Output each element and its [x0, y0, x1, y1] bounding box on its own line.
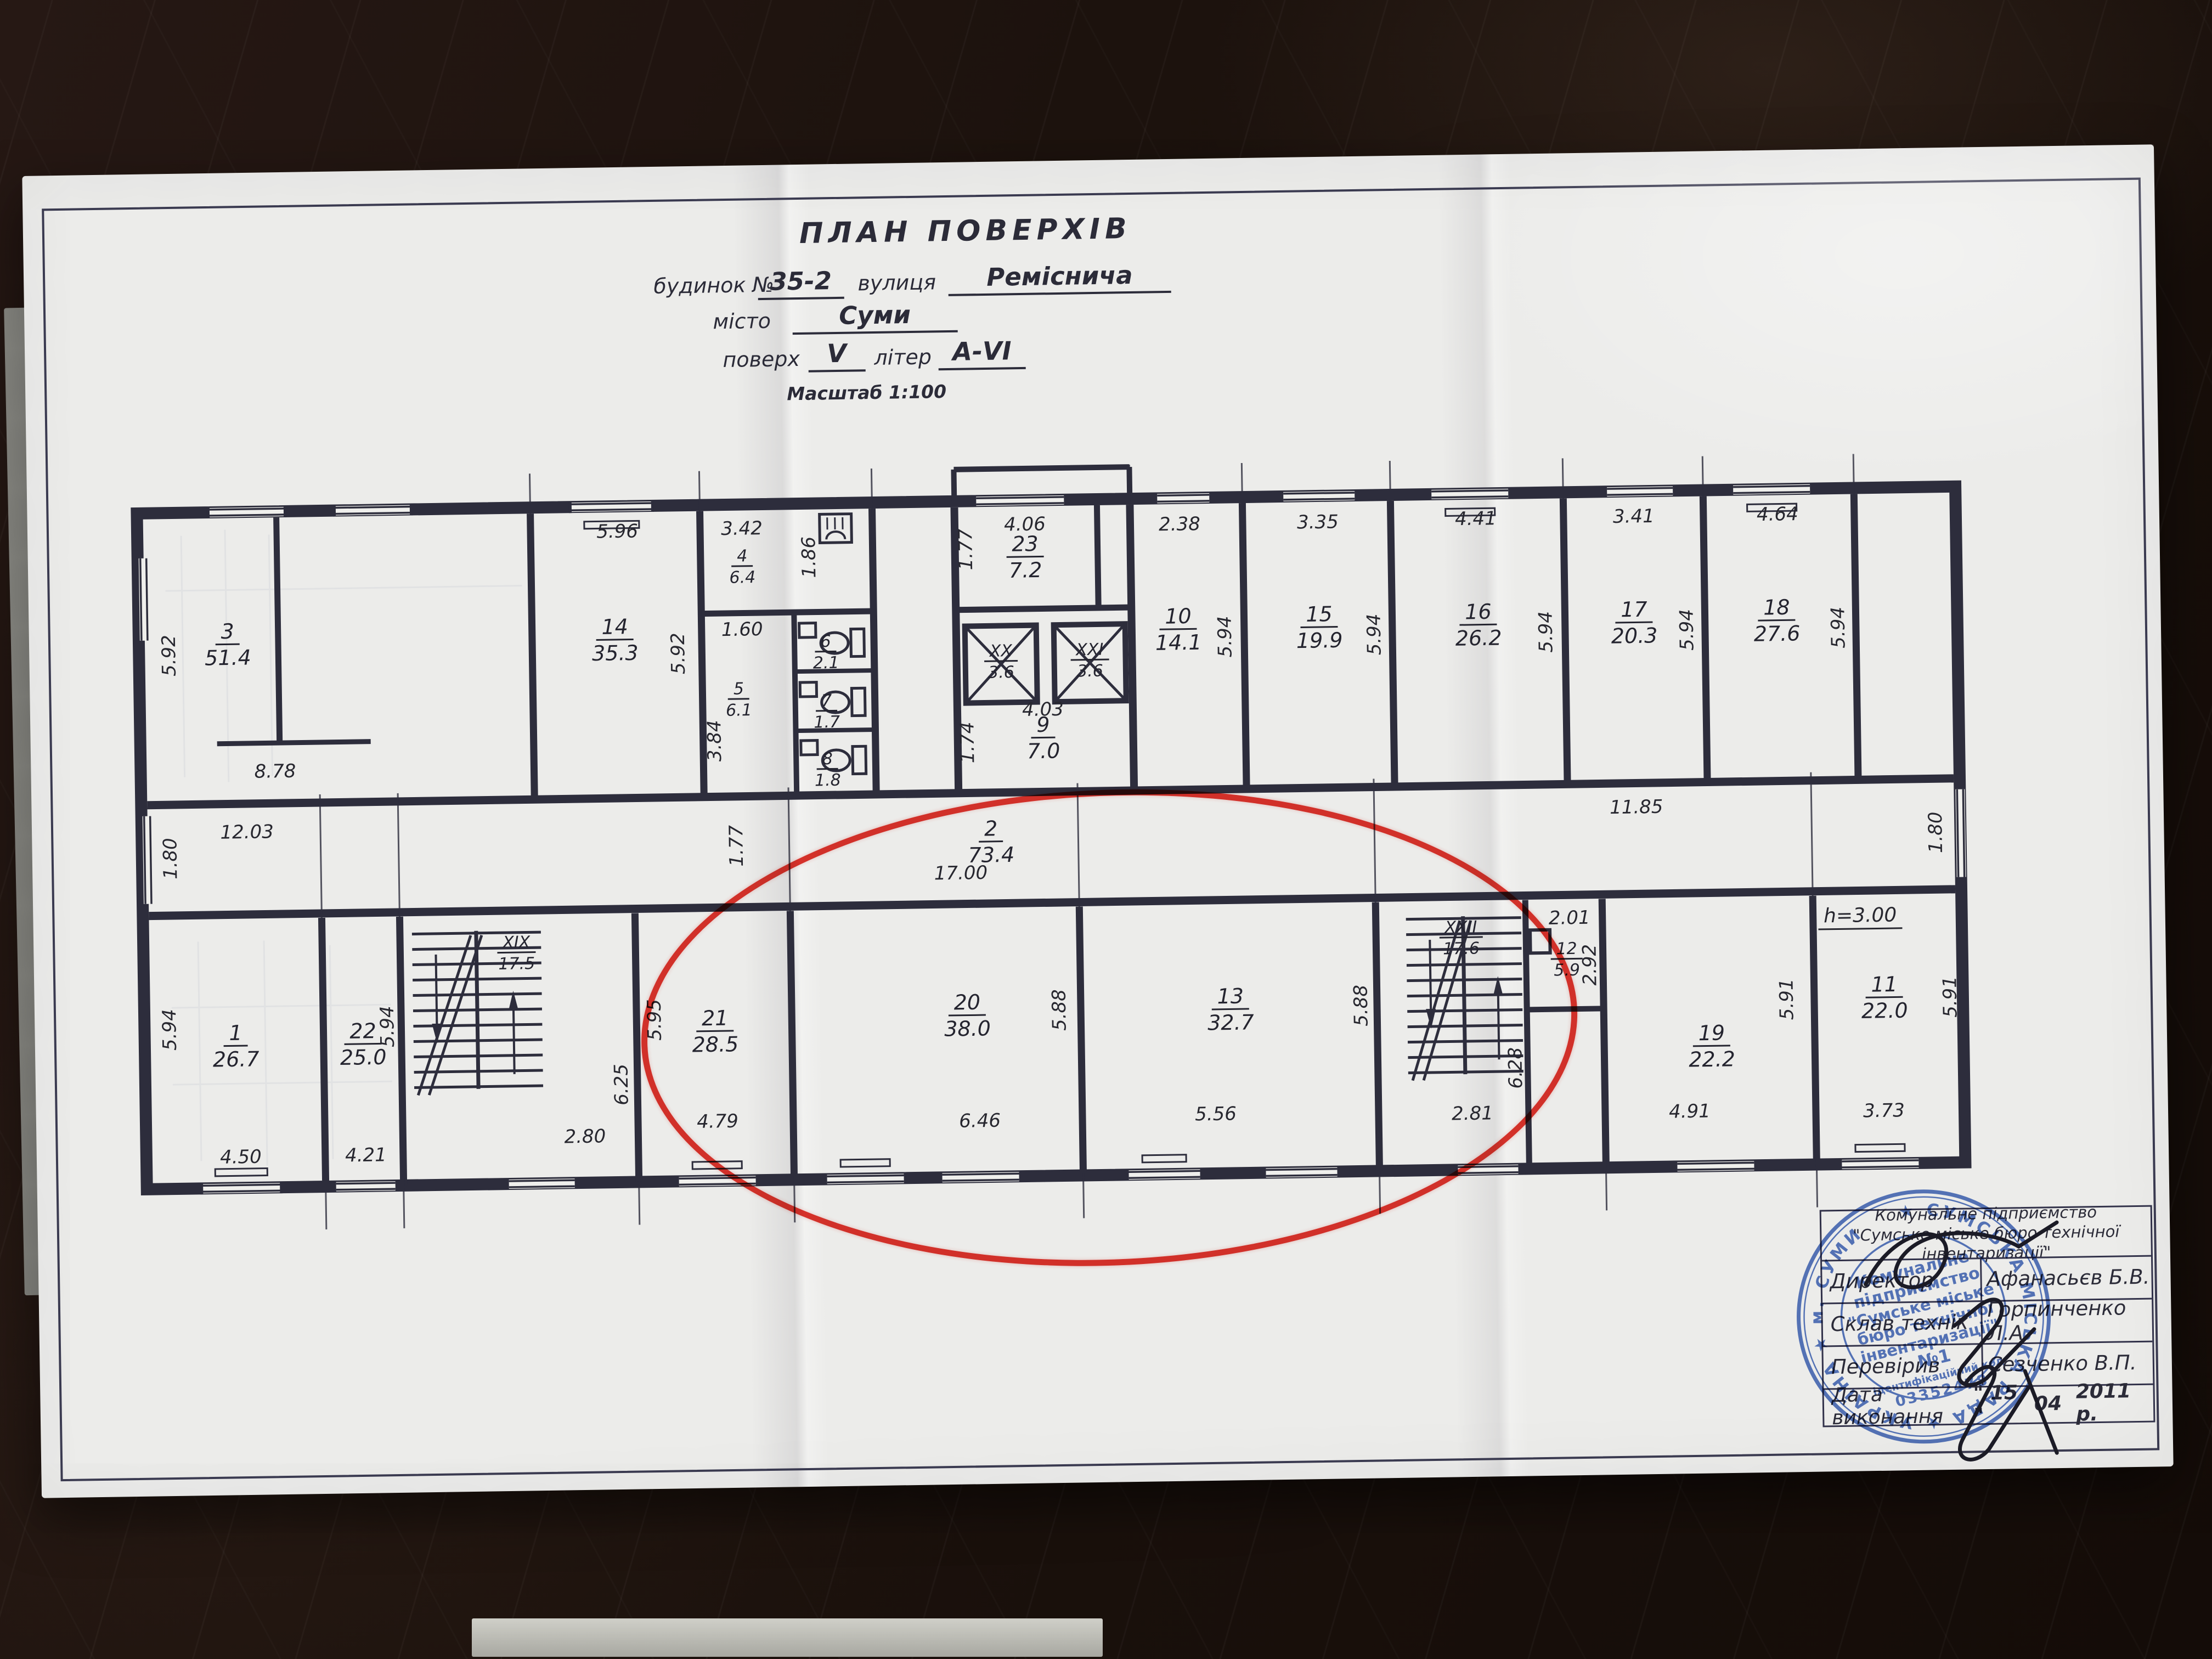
- dimension-label: 5.94: [1214, 616, 1236, 657]
- dimension-label: 1.60: [721, 618, 763, 641]
- room-label-18: 1827.6: [1753, 596, 1801, 645]
- dimension-label: 5.94: [1363, 613, 1385, 655]
- room-label-6: 62.1: [812, 633, 839, 672]
- room-label-10: 1014.1: [1155, 606, 1202, 654]
- dimension-label: 5.92: [667, 633, 690, 674]
- room-label-16: 1626.2: [1455, 601, 1502, 650]
- dimension-label: 5.94: [1675, 609, 1698, 651]
- dimension-label: 4.50: [220, 1146, 262, 1169]
- sink-icon: [820, 514, 852, 543]
- room-label-8: 81.8: [814, 751, 841, 789]
- dimension-label: 3.84: [703, 720, 726, 761]
- signature-director: [1865, 1222, 2058, 1288]
- signature-inspector: [1959, 1366, 2057, 1460]
- dimension-label: 3.35: [1297, 511, 1339, 533]
- dimension-label: 4.91: [1669, 1100, 1711, 1122]
- dimension-label: 5.91: [1775, 978, 1798, 1020]
- dimension-label: 1.77: [955, 528, 977, 570]
- room-label-15: 1519.9: [1296, 603, 1343, 652]
- dimension-label: 4.03: [1022, 698, 1064, 721]
- room-label-19: 1922.2: [1688, 1022, 1735, 1070]
- dimension-label: 3.42: [721, 517, 763, 540]
- room-label-1: 126.7: [212, 1022, 259, 1070]
- signature-scribbles: [1782, 1176, 2181, 1467]
- room-label-3: 351.4: [204, 620, 251, 669]
- room-label-11: 1122.0: [1861, 974, 1908, 1022]
- dimension-label: 2.01: [1549, 907, 1590, 929]
- dimension-label: 6.25: [610, 1064, 633, 1105]
- dimension-label: 3.73: [1863, 1099, 1905, 1122]
- dimension-label: 12.03: [220, 821, 274, 843]
- dimension-label: 4.64: [1757, 503, 1798, 526]
- dimension-label: 5.91: [1939, 976, 1961, 1018]
- dimension-label: 11.85: [1610, 796, 1663, 819]
- dimension-label: 1.74: [956, 721, 979, 763]
- room-label-23: 237.2: [1006, 533, 1045, 582]
- dimension-label: 1.80: [159, 838, 182, 879]
- dimension-label: 5.94: [1827, 607, 1849, 648]
- stair-label-xix: XIX17.5: [497, 934, 536, 973]
- dimension-label: 4.41: [1455, 507, 1497, 530]
- dimension-label: 5.94: [376, 1006, 399, 1047]
- room-label-5: 56.1: [725, 680, 752, 719]
- room-label-xxi: XXI3.6: [1070, 641, 1109, 680]
- dimension-label: 5.96: [596, 520, 638, 543]
- room-label-xx: XX3.6: [984, 642, 1018, 681]
- dimension-label: 5.94: [1534, 611, 1557, 653]
- dimension-label: 1.80: [1925, 811, 1947, 853]
- dimension-label: 4.21: [345, 1144, 387, 1166]
- dimension-label: 4.06: [1004, 513, 1046, 535]
- dimension-label: 8.78: [254, 760, 296, 783]
- dimension-label: 2.92: [1578, 944, 1601, 986]
- table-background: ПЛАН ПОВЕРХІВ будинок № 35-2 вулиця Ремі…: [0, 0, 2212, 1659]
- room-label-4: 46.4: [729, 548, 756, 586]
- room-label-17: 1720.3: [1611, 599, 1658, 647]
- dimension-label: 1.86: [798, 537, 820, 578]
- floor-plan-sheet: ПЛАН ПОВЕРХІВ будинок № 35-2 вулиця Ремі…: [22, 144, 2173, 1498]
- dimension-label: 2.38: [1159, 513, 1200, 535]
- dimension-label: 2.80: [564, 1125, 606, 1148]
- dimension-label: 5.94: [159, 1009, 181, 1051]
- dimension-label: 5.92: [158, 635, 180, 676]
- room-label-14: 1435.3: [591, 616, 639, 664]
- under-sheet-edge: [472, 1618, 1103, 1657]
- dimension-label: 3.41: [1613, 505, 1655, 528]
- dimension-label: 1.77: [725, 825, 748, 867]
- room-label-9: 97.0: [1026, 714, 1060, 762]
- height-note: h=3.00: [1818, 904, 1903, 930]
- room-label-7: 71.7: [814, 692, 840, 731]
